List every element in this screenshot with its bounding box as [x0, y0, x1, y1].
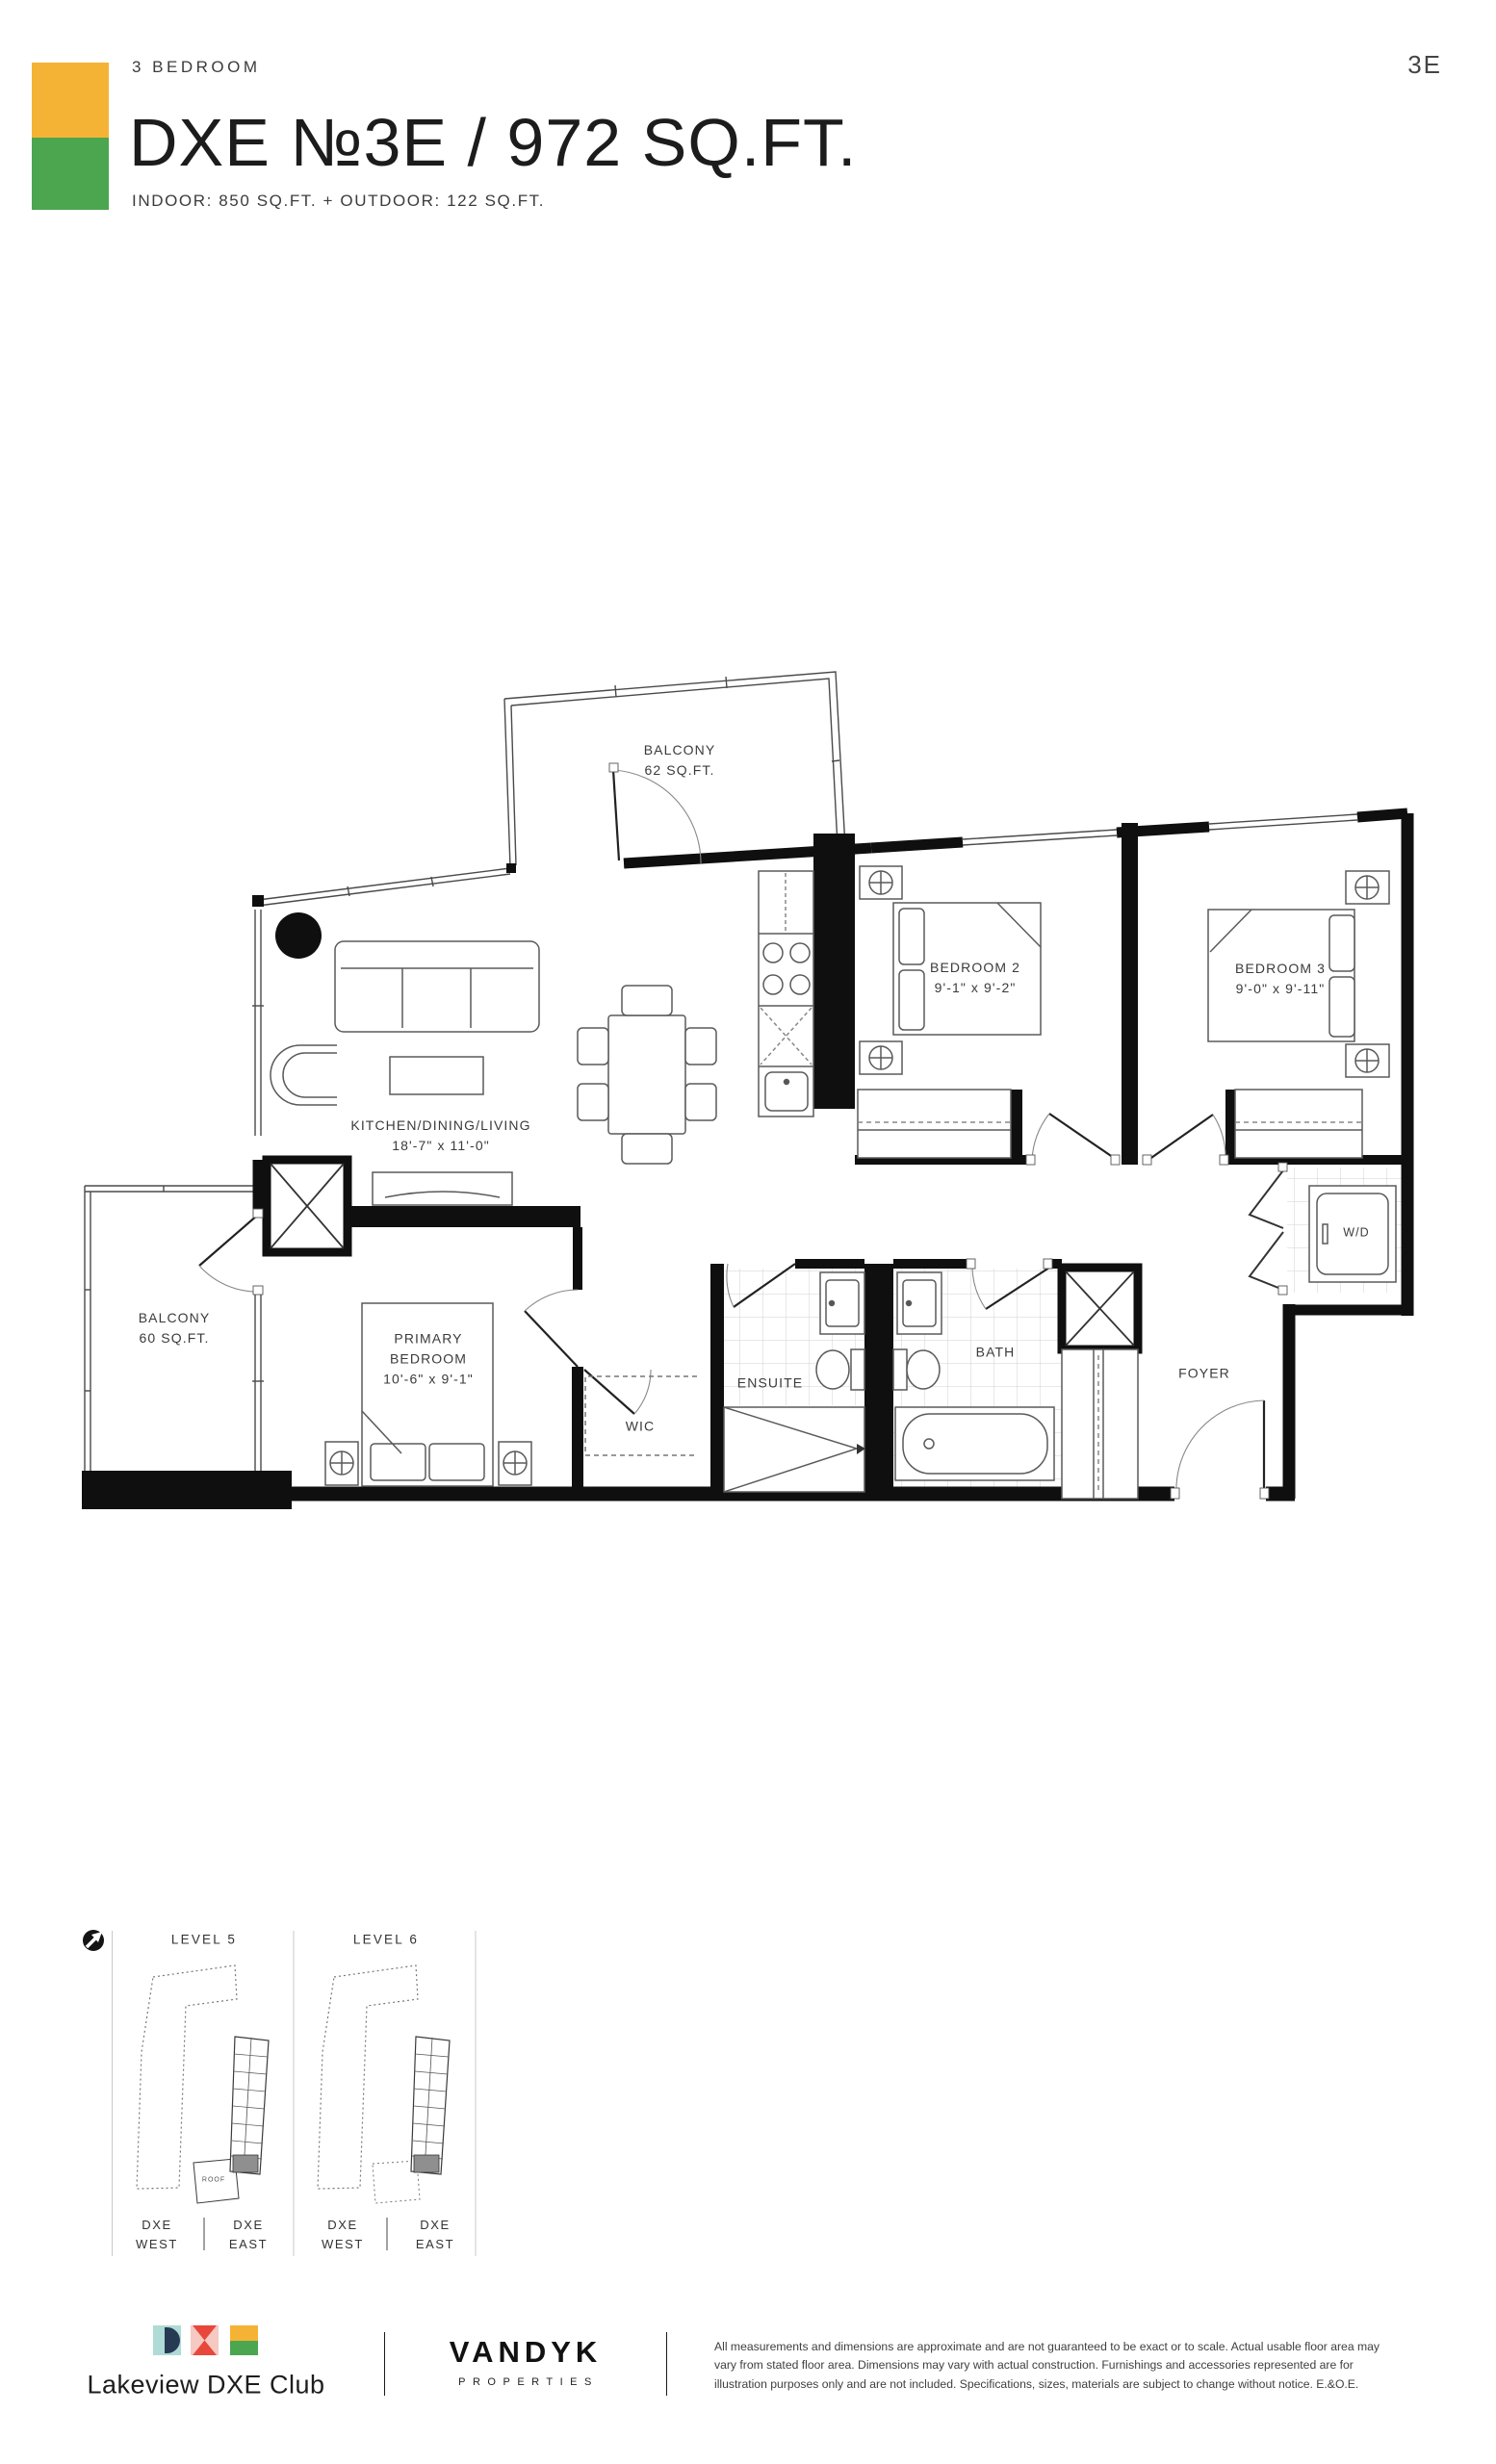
- logo-x-icon: [191, 2325, 219, 2355]
- keyplan-l5-dxe-east-label: DXEEAST: [229, 2216, 268, 2254]
- room-label-bath: BATH: [976, 1343, 1016, 1363]
- shower: [724, 1407, 864, 1492]
- kitchen-sink: [765, 1072, 808, 1111]
- developer-logo: VANDYK: [450, 2335, 603, 2370]
- room-label-kitchen-dining-living: KITCHEN/DINING/LIVING18'-7" x 11'-0": [350, 1116, 530, 1156]
- room-label-balcony-left: BALCONY60 SQ.FT.: [139, 1308, 211, 1348]
- room-label-bedroom-2: BEDROOM 29'-1" x 9'-2": [930, 958, 1020, 998]
- room-label-foyer: FOYER: [1178, 1364, 1230, 1384]
- room-label-primary-bedroom: PRIMARYBEDROOM 10'-6" x 9'-1": [383, 1329, 474, 1390]
- keyplan-level6: [318, 1965, 450, 2203]
- keyplan-l5-dxe-west-label: DXEWEST: [136, 2216, 178, 2254]
- tv-console: [373, 1172, 512, 1205]
- bed2-closet: [858, 1090, 1011, 1158]
- brand-wordmark: Lakeview DXE Club: [87, 2371, 324, 2400]
- disclaimer-text: All measurements and dimensions are appr…: [714, 2338, 1398, 2394]
- keyplan-l6-dxe-west-label: DXEWEST: [322, 2216, 364, 2254]
- keyplan-roof-label: ROOF: [202, 2177, 225, 2184]
- floor-plan-drawing: [0, 0, 1496, 2464]
- coffee-table: [390, 1057, 483, 1094]
- dining-table: [608, 1015, 685, 1134]
- round-column: [275, 912, 322, 959]
- developer-logo-subtitle: PROPERTIES: [458, 2376, 599, 2388]
- logo-d-icon: [153, 2325, 181, 2355]
- keyplan-section: [83, 1930, 476, 2256]
- ensuite-toilet: [816, 1350, 849, 1389]
- sofa: [335, 941, 539, 1032]
- room-label-wic: WIC: [626, 1417, 656, 1437]
- room-label-ensuite: ENSUITE: [737, 1373, 803, 1394]
- footer-divider-2: [666, 2332, 667, 2396]
- logo-e-icon: [230, 2325, 258, 2355]
- foyer-closet: [1062, 1349, 1138, 1499]
- bathtub: [895, 1407, 1054, 1480]
- room-label-washer-dryer: W/D: [1343, 1224, 1370, 1243]
- room-label-bedroom-3: BEDROOM 39'-0" x 9'-11": [1235, 959, 1326, 999]
- room-label-balcony-top: BALCONY62 SQ.FT.: [644, 740, 716, 781]
- bifold-doors: [1250, 1170, 1283, 1290]
- footer-divider-1: [384, 2332, 385, 2396]
- keyplan-level5: [137, 1965, 269, 2203]
- lounge-chair: [271, 1045, 337, 1105]
- bed3-closet: [1235, 1090, 1362, 1158]
- north-compass-icon: [83, 1930, 104, 1951]
- keyplan-level5-title: LEVEL 5: [171, 1933, 237, 1947]
- keyplan-level6-title: LEVEL 6: [353, 1933, 419, 1947]
- bath-toilet: [907, 1350, 940, 1389]
- keyplan-l6-dxe-east-label: DXEEAST: [416, 2216, 454, 2254]
